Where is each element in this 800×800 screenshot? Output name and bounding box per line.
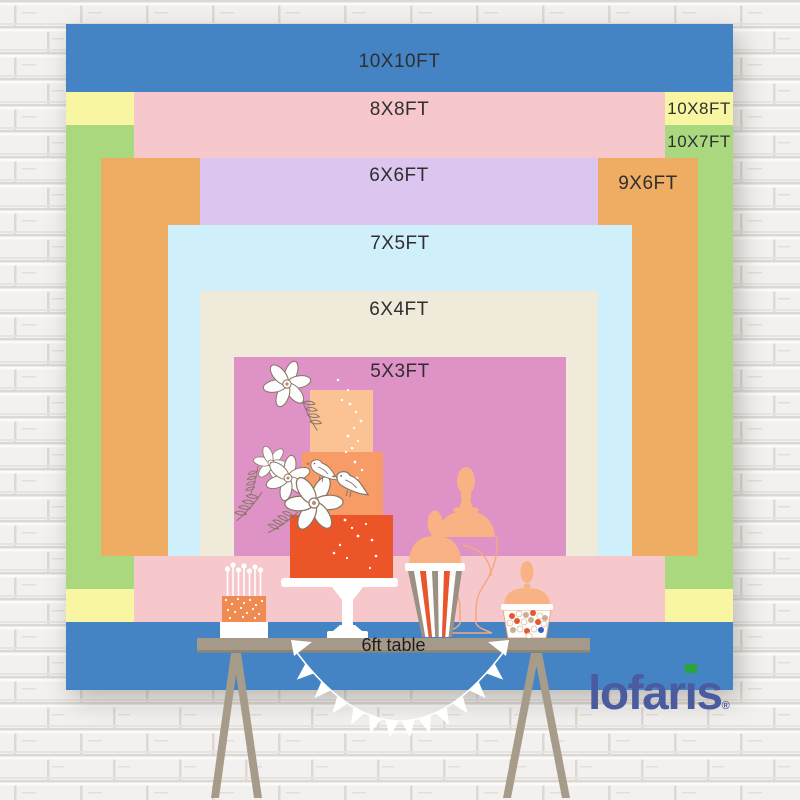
backdrop-size-chart: 10X10FT 10X8FT 10X7FT 8X8FT 9X6FT 6X6FT … xyxy=(0,0,800,800)
bunting-pennant xyxy=(469,681,485,698)
bunting-pennant xyxy=(435,707,449,725)
cake-pops-box xyxy=(220,562,268,639)
bunting-pennant xyxy=(452,696,467,714)
logo-i-dot xyxy=(685,664,697,673)
brand-logo-text: lofarıs xyxy=(588,667,722,720)
party-table xyxy=(197,638,590,798)
bunting-pennant xyxy=(385,720,398,738)
candy-cup xyxy=(501,561,553,639)
table-leg xyxy=(233,653,262,798)
bunting-pennant xyxy=(402,720,415,738)
bunting-pennant xyxy=(314,681,330,698)
apothecary-jar-silhouette xyxy=(437,467,495,537)
bunting-pennant xyxy=(351,707,365,725)
table-leg xyxy=(211,653,239,798)
bunting-pennant xyxy=(332,696,347,714)
table-size-label: 6ft table xyxy=(197,636,590,654)
bunting-pennant xyxy=(486,664,503,680)
brand-logo: lofarıs® xyxy=(588,670,730,730)
registered-trademark-icon: ® xyxy=(722,700,730,712)
bunting-pennant xyxy=(297,664,314,680)
table-leg xyxy=(503,653,539,798)
cake-stand xyxy=(281,578,398,639)
table-leg xyxy=(534,653,570,798)
